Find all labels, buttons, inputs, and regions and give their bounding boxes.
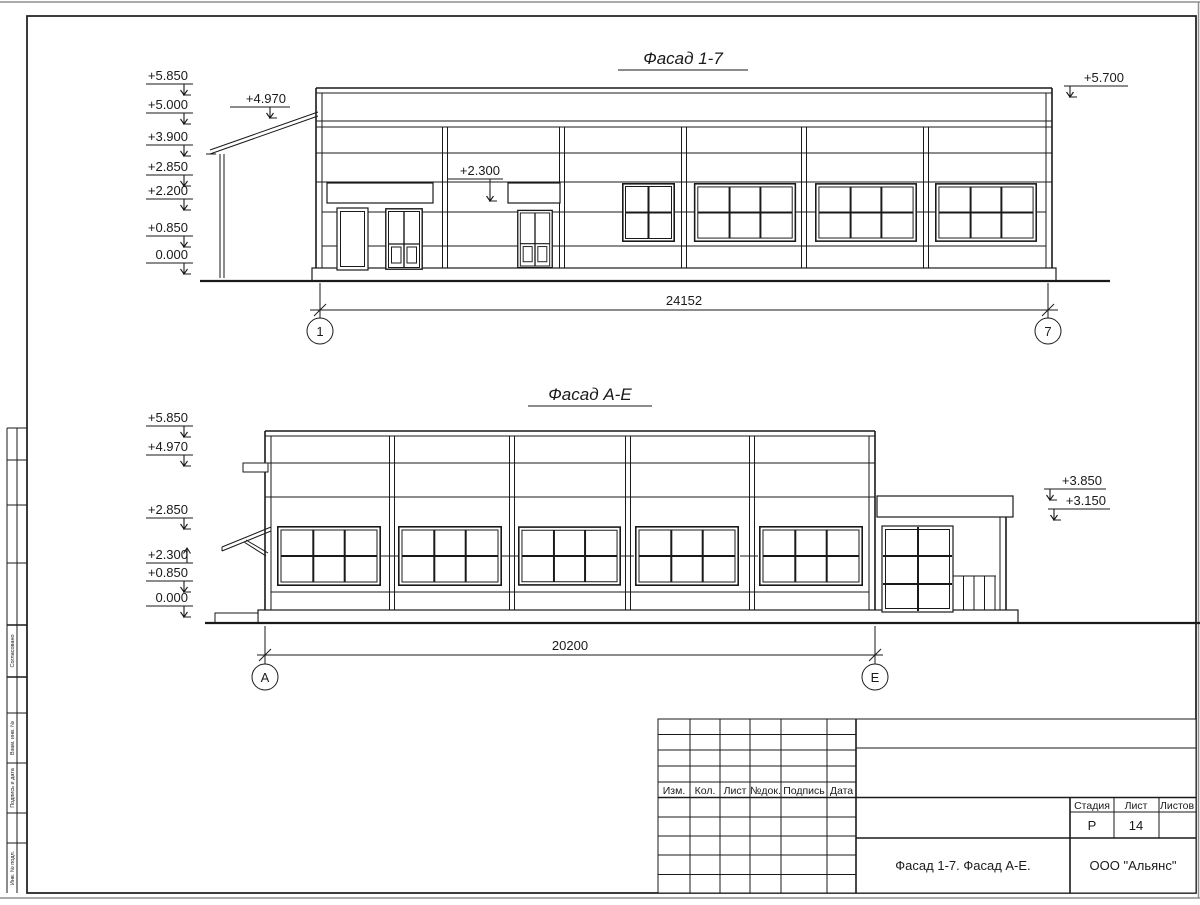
level-mark-text: +2.300 bbox=[148, 547, 188, 562]
plinth-1-7 bbox=[312, 268, 1056, 281]
level-mark-text: +3.850 bbox=[1062, 473, 1102, 488]
annex-railing bbox=[953, 576, 996, 610]
elevation-marks-a-e: +5.850 +4.970 +2.850 +2.300 +0.850 0.000 bbox=[146, 410, 193, 617]
rev-col-label: Лист bbox=[724, 785, 747, 797]
elevation-marks-1-7: +5.850 +5.000 +3.900 +2.850 +2.200 +0.85… bbox=[146, 68, 193, 274]
sheet-label: Лист bbox=[1125, 800, 1148, 812]
window bbox=[636, 527, 738, 585]
canopy-level-mark: +4.970 bbox=[230, 91, 290, 118]
level-mark-text: +5.700 bbox=[1084, 70, 1124, 85]
dimension-text: 20200 bbox=[552, 638, 588, 653]
facade-a-e-title: Фасад А-Е bbox=[548, 385, 632, 404]
level-mark-text: +5.850 bbox=[148, 410, 188, 425]
level-mark-text: +5.000 bbox=[148, 97, 188, 112]
margin-label: Инв. № подл. bbox=[10, 850, 16, 885]
window bbox=[278, 527, 380, 585]
margin-label: Согласовано bbox=[10, 634, 16, 667]
axis-label: А bbox=[261, 670, 270, 685]
window bbox=[399, 527, 501, 585]
dimension-1-7: 24152 1 7 bbox=[307, 283, 1061, 344]
axis-label: 1 bbox=[316, 324, 323, 339]
entrance-doors bbox=[337, 208, 552, 270]
facade-a-e: Фасад А-Е bbox=[146, 385, 1200, 690]
title-block: Изм. Кол. Лист №док. Подпись Дата Стадия… bbox=[658, 719, 1196, 893]
level-mark-text: +2.850 bbox=[148, 159, 188, 174]
facade-1-7: Фасад 1-7 bbox=[146, 49, 1128, 344]
sheet-value: 14 bbox=[1129, 818, 1143, 833]
level-mark-text: +4.970 bbox=[246, 91, 286, 106]
document-title: Фасад 1-7. Фасад А-Е. bbox=[895, 858, 1030, 873]
window bbox=[936, 184, 1036, 241]
level-mark-text: +2.300 bbox=[460, 163, 500, 178]
rev-col-label: Подпись bbox=[783, 785, 825, 797]
level-mark-text: +2.200 bbox=[148, 183, 188, 198]
level-mark-text: +0.850 bbox=[148, 565, 188, 580]
dimension-a-e: 20200 А Е bbox=[252, 626, 888, 690]
annex bbox=[877, 496, 1013, 612]
sheets-label: Листов bbox=[1160, 800, 1195, 812]
level-mark-text: 0.000 bbox=[155, 590, 188, 605]
margin-label: Взам. инв. № bbox=[10, 721, 16, 755]
window bbox=[760, 527, 862, 585]
rev-col-label: Изм. bbox=[663, 785, 686, 797]
level-mark-text: +3.900 bbox=[148, 129, 188, 144]
stage-label: Стадия bbox=[1074, 800, 1110, 812]
rev-col-label: №док. bbox=[750, 785, 781, 797]
level-mark-text: 0.000 bbox=[155, 247, 188, 262]
axis-label: Е bbox=[871, 670, 880, 685]
canopy-a-e bbox=[222, 527, 271, 556]
beam-end bbox=[243, 463, 268, 472]
level-mark-text: +4.970 bbox=[148, 439, 188, 454]
axis-label: 7 bbox=[1044, 324, 1051, 339]
company-name: ООО "Альянс" bbox=[1090, 858, 1177, 873]
annex-window bbox=[882, 526, 953, 612]
rev-col-label: Кол. bbox=[695, 785, 716, 797]
margin-strip: Согласовано Взам. инв. № Подпись и дата … bbox=[7, 428, 27, 893]
window bbox=[816, 184, 916, 241]
canopy-1-7 bbox=[206, 112, 318, 278]
level-mark-text: +2.850 bbox=[148, 502, 188, 517]
parapet-level-mark: +5.700 bbox=[1064, 70, 1128, 97]
stage-value: Р bbox=[1088, 818, 1097, 833]
door-lintel-band bbox=[508, 183, 560, 203]
level-mark-text: +5.850 bbox=[148, 68, 188, 83]
drawing-sheet: Согласовано Взам. инв. № Подпись и дата … bbox=[0, 0, 1200, 900]
facade-drawing-svg: Согласовано Взам. инв. № Подпись и дата … bbox=[0, 0, 1200, 900]
entry-step bbox=[215, 613, 258, 623]
level-mark-text: +0.850 bbox=[148, 220, 188, 235]
level-mark-text: +3.150 bbox=[1066, 493, 1106, 508]
window bbox=[695, 184, 796, 241]
annex-roof bbox=[877, 496, 1013, 517]
rev-col-label: Дата bbox=[830, 785, 853, 797]
dimension-text: 24152 bbox=[666, 293, 702, 308]
annex-level-marks: +3.850 +3.150 bbox=[1044, 473, 1110, 520]
margin-label: Подпись и дата bbox=[10, 767, 16, 807]
facade-1-7-title: Фасад 1-7 bbox=[643, 49, 723, 68]
window bbox=[623, 184, 674, 241]
window bbox=[519, 527, 620, 585]
door-lintel-band bbox=[327, 183, 433, 203]
